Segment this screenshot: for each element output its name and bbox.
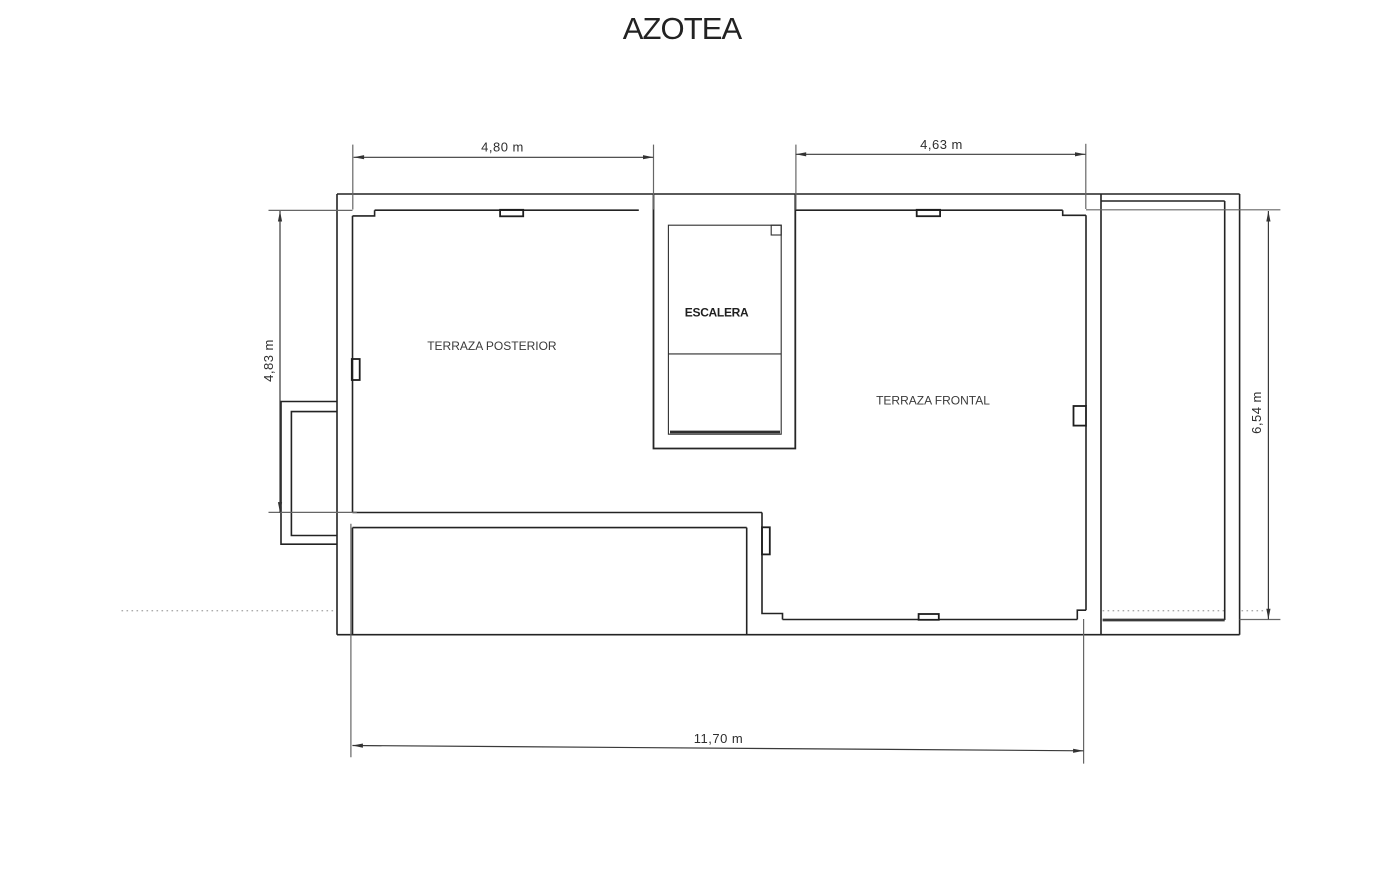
svg-text:11,70 m: 11,70 m (694, 731, 744, 746)
svg-text:4,80 m: 4,80 m (481, 140, 524, 155)
svg-text:TERRAZA FRONTAL: TERRAZA FRONTAL (876, 393, 990, 407)
svg-text:4,63 m: 4,63 m (920, 137, 963, 152)
svg-text:TERRAZA POSTERIOR: TERRAZA POSTERIOR (427, 339, 557, 353)
svg-text:ESCALERA: ESCALERA (685, 306, 749, 320)
svg-text:4,83 m: 4,83 m (261, 339, 276, 382)
svg-text:AZOTEA: AZOTEA (623, 11, 743, 46)
svg-text:6,54 m: 6,54 m (1249, 391, 1264, 434)
